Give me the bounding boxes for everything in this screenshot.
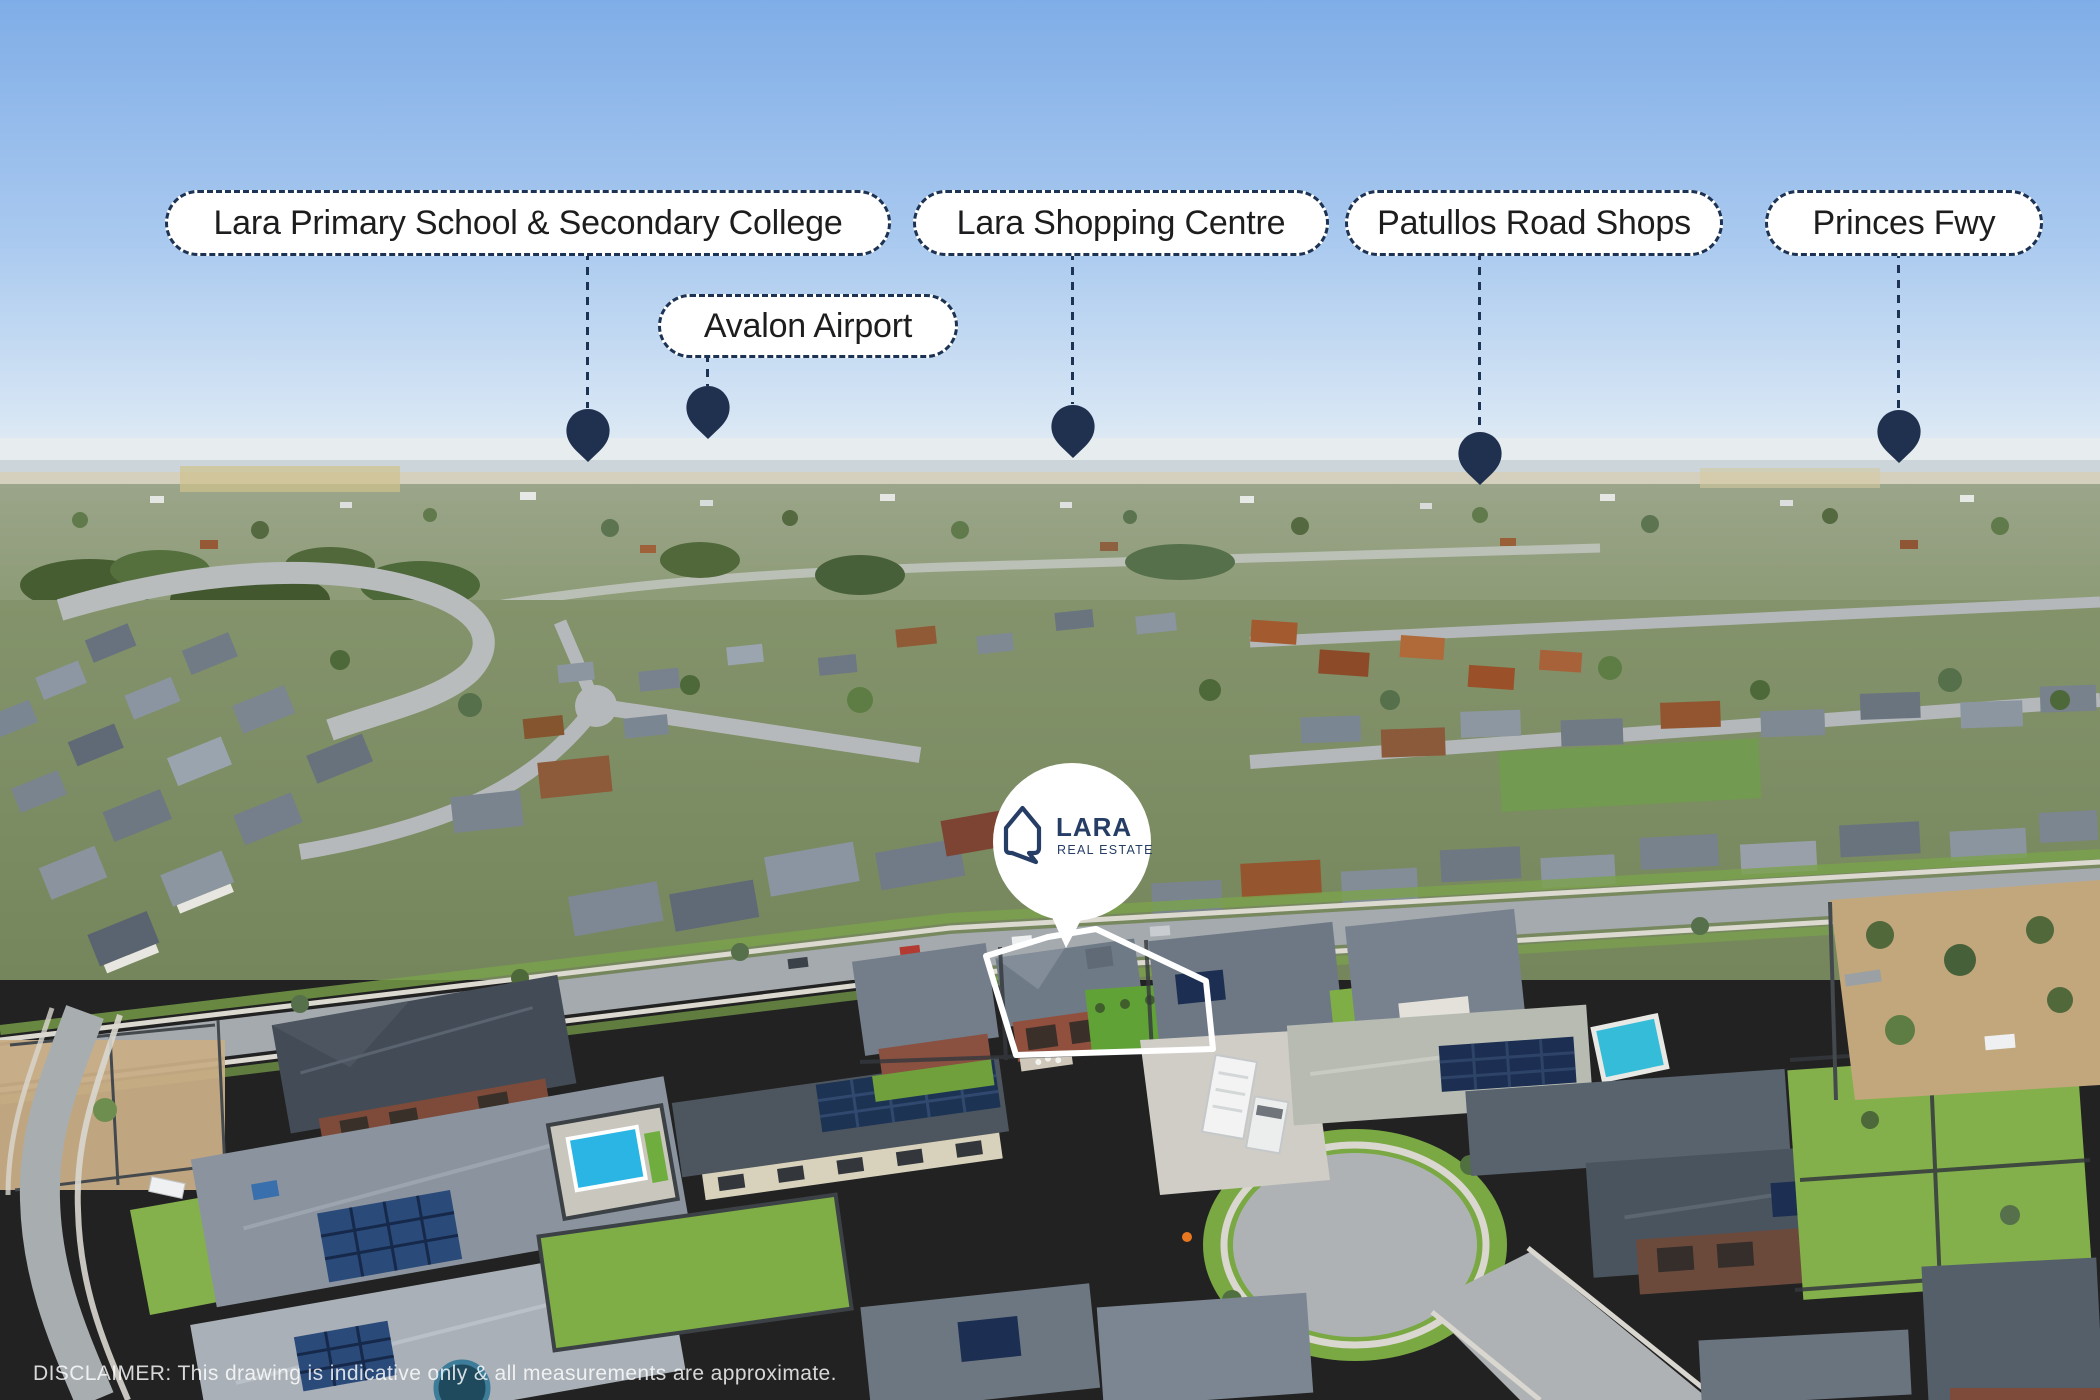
location-pin-icon-avalon [685,385,731,440]
label-pill-shopping: Lara Shopping Centre [913,190,1329,256]
label-text-patullos: Patullos Road Shops [1377,204,1691,243]
label-text-shopping: Lara Shopping Centre [957,204,1286,243]
connector-line-patullos [1478,252,1481,431]
location-pin-icon-school [565,408,611,463]
aerial-map: LARA REAL ESTATE Lara Primary School & S… [0,0,2100,1400]
disclaimer-text: DISCLAIMER: This drawing is indicative o… [33,1362,837,1386]
label-pill-school: Lara Primary School & Secondary College [165,190,891,256]
label-text-avalon: Avalon Airport [704,307,912,346]
location-pin-icon-patullos [1457,431,1503,486]
label-text-princes: Princes Fwy [1813,204,1996,243]
connector-line-shopping [1071,252,1074,404]
connector-line-princes [1897,250,1900,409]
label-pill-avalon: Avalon Airport [658,294,958,358]
label-pill-princes: Princes Fwy [1765,190,2043,256]
connector-line-school [586,252,589,408]
label-text-school: Lara Primary School & Secondary College [213,204,842,243]
location-pin-icon-princes [1876,409,1922,464]
location-pin-icon-shopping [1050,404,1096,459]
label-pill-patullos: Patullos Road Shops [1345,190,1723,256]
connector-line-avalon [706,354,709,386]
